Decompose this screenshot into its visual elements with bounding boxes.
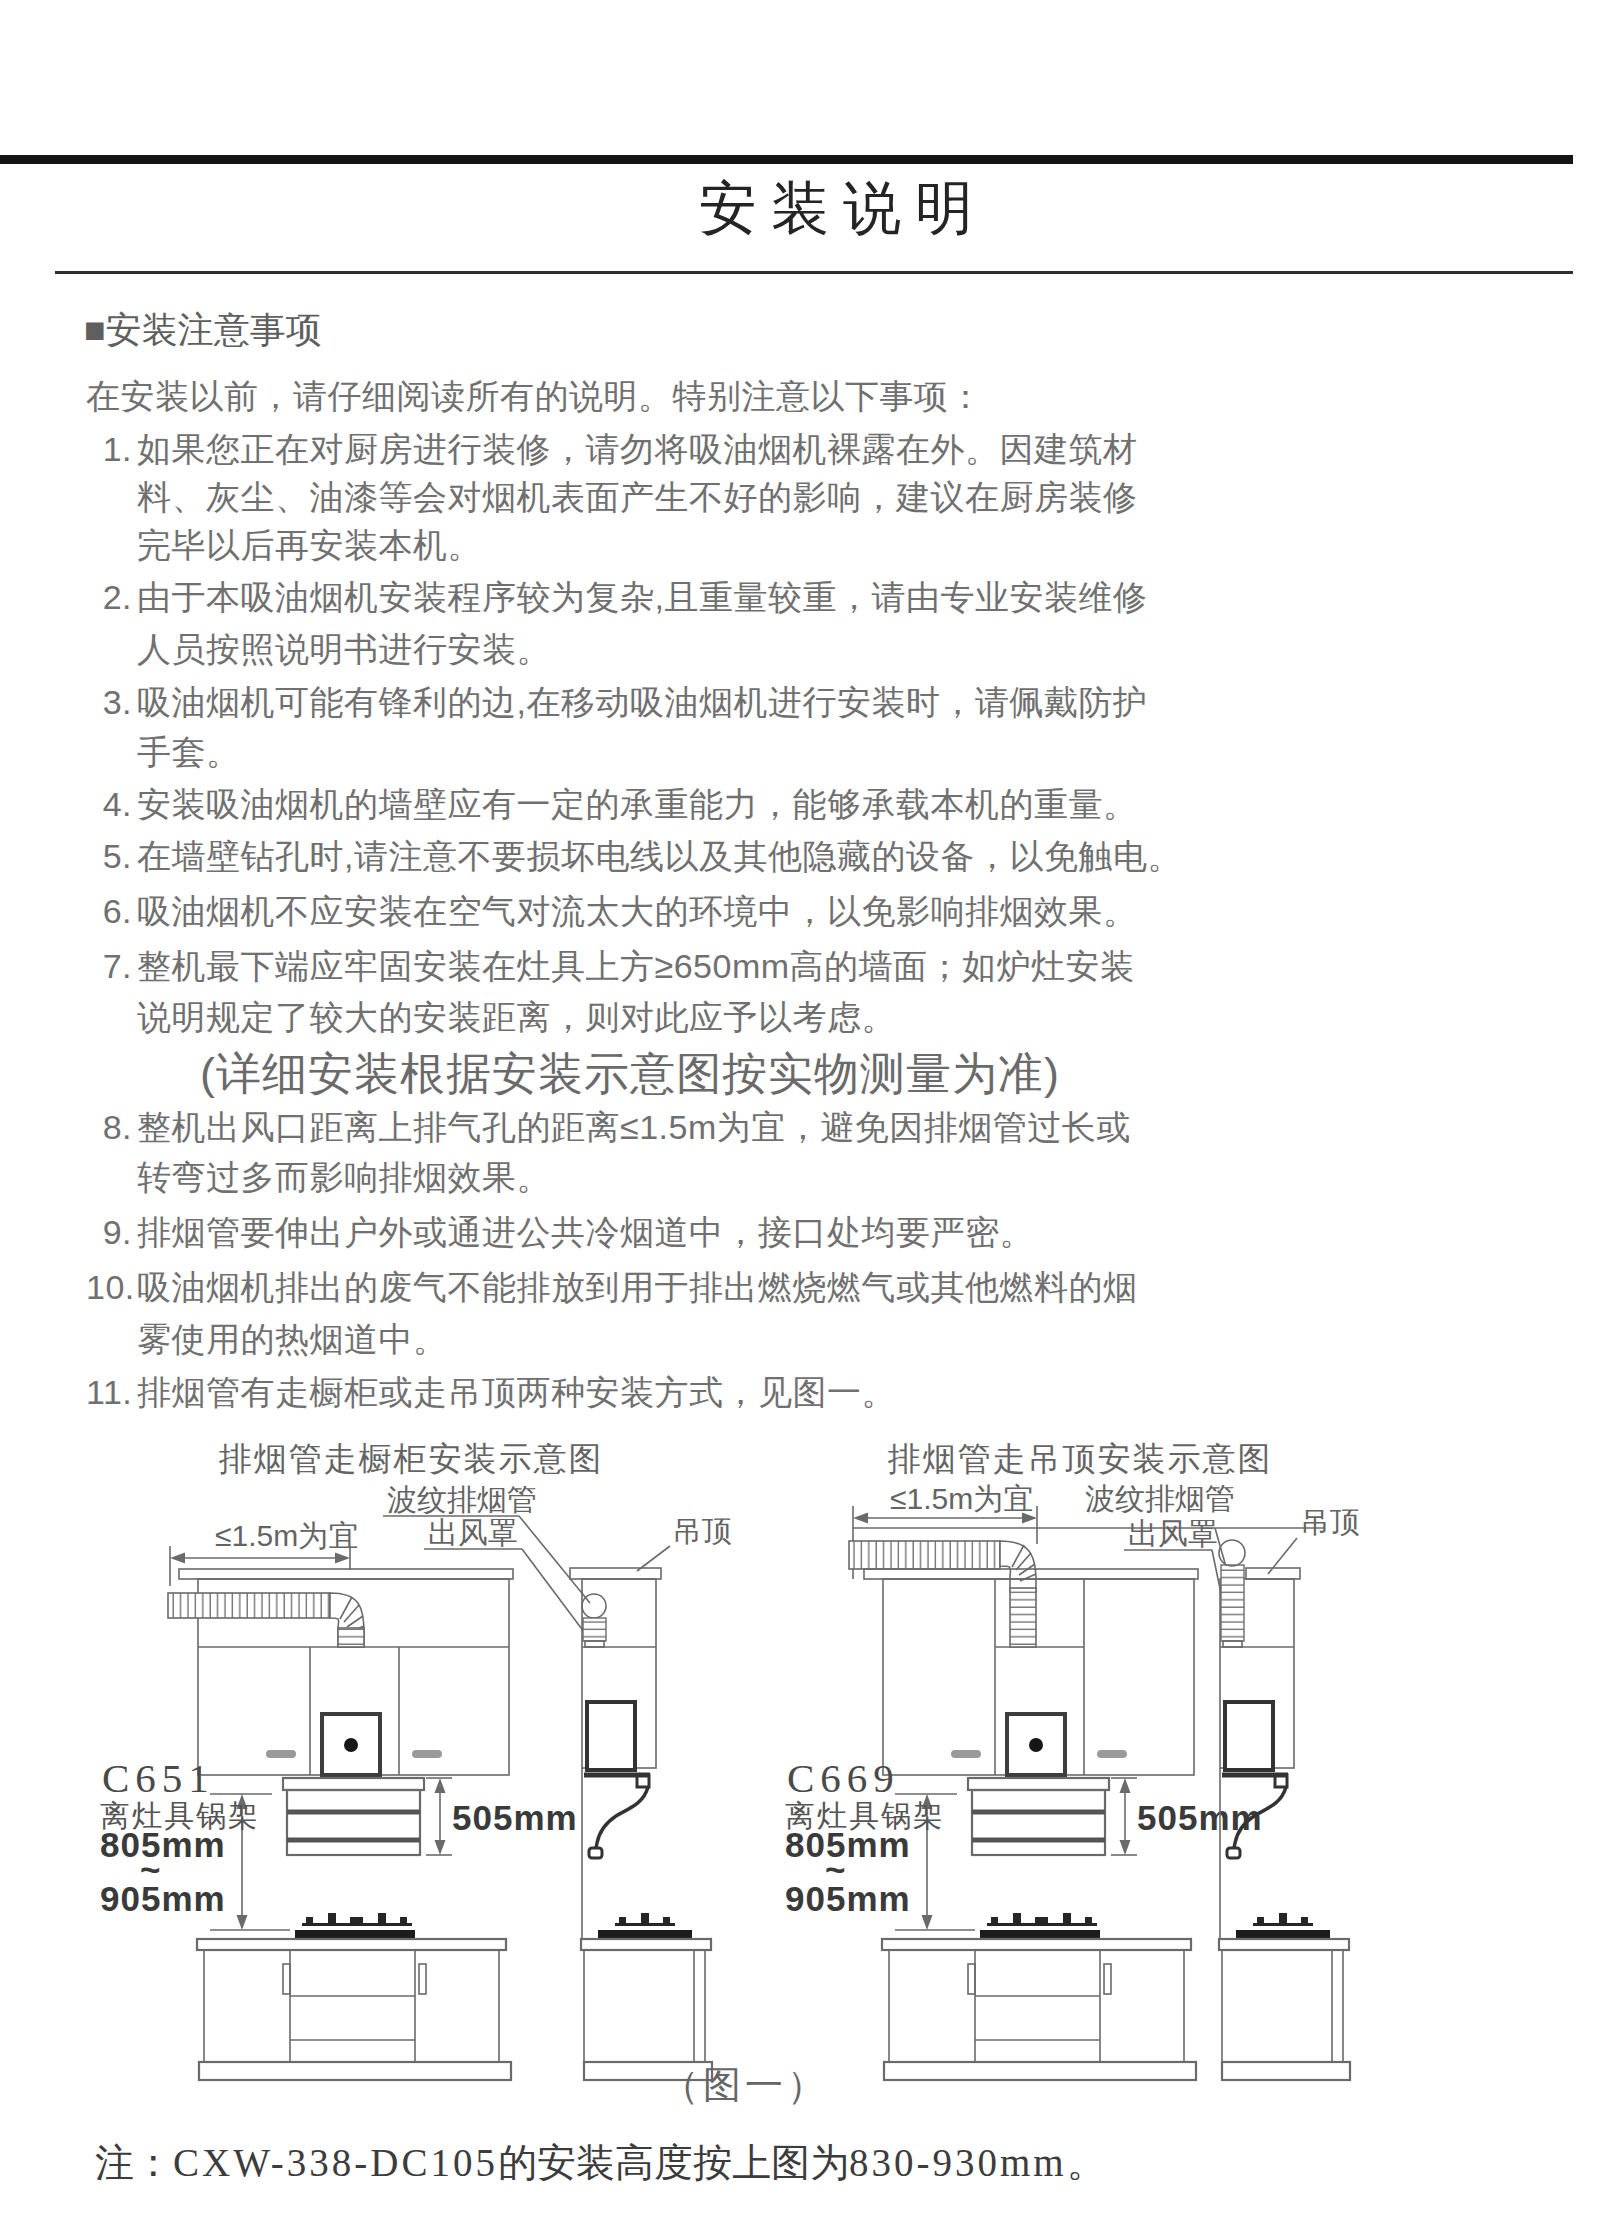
vertical-duct: [1010, 1588, 1036, 1647]
right-corrugated-duct: [849, 1541, 1036, 1592]
ceiling-label: 吊顶: [1300, 1505, 1360, 1538]
figure-caption: （图一）: [661, 2064, 829, 2106]
item-number: 8.: [86, 1108, 132, 1147]
clearance-max: 905mm: [100, 1879, 226, 1918]
outlet-cover-label: 出风罩: [1128, 1517, 1218, 1550]
item-text: 安装吸油烟机的墙壁应有一定的承重能力，能够承载本机的重量。: [137, 785, 1138, 823]
item-text: 排烟管要伸出户外或通进公共冷烟道中，接口处均要严密。: [137, 1213, 1034, 1251]
item-text: 吸油烟机不应安装在空气对流太大的环境中，以免影响排烟效果。: [137, 892, 1138, 930]
item-text: 说明规定了较大的安装距离，则对此应予以考虑。: [137, 995, 896, 1041]
vertical-duct: [583, 1618, 606, 1641]
hood-side-body: [1225, 1702, 1273, 1770]
top-rule: [0, 155, 1573, 164]
manual-page: 安装说明 ■安装注意事项 在安装以前，请仔细阅读所有的说明。特别注意以下事项： …: [0, 0, 1600, 2218]
list-item: 5.在墙壁钻孔时,请注意不要损坏电线以及其他隐藏的设备，以免触电。: [86, 834, 1182, 880]
item-text: 转弯过多而影响排烟效果。: [137, 1155, 551, 1201]
list-item: 8.整机出风口距离上排气孔的距离≤1.5m为宜，避免因排烟管过长或: [86, 1105, 1131, 1151]
cabinet-handle: [266, 1750, 296, 1758]
max-run-label: ≤1.5m为宜: [890, 1482, 1033, 1515]
hood-height-value: 505mm: [1137, 1798, 1263, 1837]
right-hood-height-dimension: 505mm: [1111, 1778, 1263, 1855]
footnote-range: 830-930mm。: [849, 2141, 1109, 2184]
item-text: 手套。: [137, 730, 241, 776]
item-text: 整机最下端应牢固安装在灶具上方≥650mm高的墙面；如炉灶安装: [137, 947, 1135, 985]
item-number: 1.: [86, 430, 132, 469]
title-underline: [55, 271, 1573, 274]
chase-knockout-dot: [1029, 1738, 1043, 1752]
corrugated-pipe-label: 波纹排烟管: [1085, 1482, 1235, 1515]
model-left: C651: [102, 1755, 215, 1801]
item-number: 10.: [86, 1268, 132, 1307]
clearance-min: 805mm: [100, 1825, 226, 1864]
item-text: 整机出风口距离上排气孔的距离≤1.5m为宜，避免因排烟管过长或: [137, 1108, 1131, 1146]
item-text: 人员按照说明书进行安装。: [137, 627, 551, 673]
hood-side-body: [587, 1702, 635, 1770]
right-base-cabinet: [882, 1939, 1196, 2080]
footnote-model: CXW-338-DC105: [173, 2141, 498, 2184]
page-title: 安装说明: [243, 170, 1443, 248]
fig-right-title: 排烟管走吊顶安装示意图: [888, 1440, 1273, 1477]
item-number: 2.: [86, 578, 132, 617]
ceiling-label: 吊顶: [672, 1514, 732, 1547]
item-number: 6.: [86, 892, 132, 931]
hood-height-dimension: 505mm: [426, 1778, 578, 1855]
list-item: 10.吸油烟机排出的废气不能排放到用于排出燃烧燃气或其他燃料的烟: [86, 1265, 1138, 1311]
intro-text: 在安装以前，请仔细阅读所有的说明。特别注意以下事项：: [86, 374, 983, 420]
max-run-label: ≤1.5m为宜: [215, 1519, 358, 1552]
list-item: 1.如果您正在对厨房进行装修，请勿将吸油烟机裸露在外。因建筑材: [86, 427, 1138, 473]
cabinet-handle: [283, 1964, 290, 1994]
item-number: 5.: [86, 837, 132, 876]
vertical-duct: [1221, 1565, 1244, 1641]
measurement-note: (详细安装根据安装示意图按实物测量为准): [200, 1044, 1060, 1104]
outlet-cover-label: 出风罩: [428, 1516, 518, 1549]
section-header: ■安装注意事项: [84, 306, 322, 355]
hood-height-value: 505mm: [452, 1798, 578, 1837]
list-item: 2.由于本吸油烟机安装程序较为复杂,且重量较重，请由专业安装维修: [86, 575, 1147, 621]
footnote-prefix: 注：: [95, 2141, 173, 2184]
corrugated-pipe-label: 波纹排烟管: [387, 1483, 537, 1516]
list-item: 7.整机最下端应牢固安装在灶具上方≥650mm高的墙面；如炉灶安装: [86, 944, 1135, 990]
right-stove: [980, 1913, 1100, 1939]
item-number: 9.: [86, 1213, 132, 1252]
callout-line: [522, 1549, 590, 1640]
item-text: 在墙壁钻孔时,请注意不要损坏电线以及其他隐藏的设备，以免触电。: [137, 837, 1182, 875]
run-length-dimension: [170, 1546, 350, 1586]
left-range-hood: [283, 1778, 424, 1855]
item-text: 雾使用的热烟道中。: [137, 1317, 448, 1363]
cabinet-handle: [1104, 1964, 1111, 1994]
list-item: 4.安装吸油烟机的墙壁应有一定的承重能力，能够承载本机的重量。: [86, 782, 1138, 828]
list-item: 6.吸油烟机不应安装在空气对流太大的环境中，以免影响排烟效果。: [86, 889, 1138, 935]
right-range-hood: [968, 1778, 1109, 1855]
model-right: C669: [787, 1755, 900, 1801]
list-item: 3.吸油烟机可能有锋利的边,在移动吸油烟机进行安装时，请佩戴防护: [86, 680, 1147, 726]
item-number: 4.: [86, 785, 132, 824]
cabinet-handle: [412, 1750, 442, 1758]
cabinet-handle: [968, 1964, 975, 1994]
left-stove: [295, 1913, 415, 1939]
cabinet-handle: [951, 1750, 981, 1758]
clearance-max: 905mm: [785, 1879, 911, 1918]
cabinet-handle: [1097, 1750, 1127, 1758]
item-text: 料、灰尘、油漆等会对烟机表面产生不好的影响，建议在厨房装修: [137, 475, 1138, 521]
left-side-view: [570, 1568, 712, 2080]
item-text: 由于本吸油烟机安装程序较为复杂,且重量较重，请由专业安装维修: [137, 578, 1147, 616]
item-number: 7.: [86, 947, 132, 986]
item-text: 完毕以后再安装本机。: [137, 523, 482, 569]
chase-knockout-dot: [344, 1738, 358, 1752]
cabinet-handle: [419, 1964, 426, 1994]
item-text: 如果您正在对厨房进行装修，请勿将吸油烟机裸露在外。因建筑材: [137, 430, 1138, 468]
item-text: 吸油烟机可能有锋利的边,在移动吸油烟机进行安装时，请佩戴防护: [137, 683, 1147, 721]
fig-left-title: 排烟管走橱柜安装示意图: [219, 1440, 604, 1477]
clearance-min: 805mm: [785, 1825, 911, 1864]
item-text: 吸油烟机排出的废气不能排放到用于排出燃烧燃气或其他燃料的烟: [137, 1268, 1138, 1306]
footnote: 注：CXW-338-DC105的安装高度按上图为830-930mm。: [95, 2136, 1109, 2190]
left-base-cabinet: [197, 1939, 511, 2080]
footnote-middle: 的安装高度按上图为: [498, 2141, 849, 2184]
figure-one-diagram: 排烟管走橱柜安装示意图 波纹排烟管 出风罩 ≤1.5m为宜: [0, 1360, 1600, 2120]
outlet-cover: [582, 1594, 606, 1618]
item-number: 3.: [86, 683, 132, 722]
list-item: 9.排烟管要伸出户外或通进公共冷烟道中，接口处均要严密。: [86, 1210, 1034, 1256]
